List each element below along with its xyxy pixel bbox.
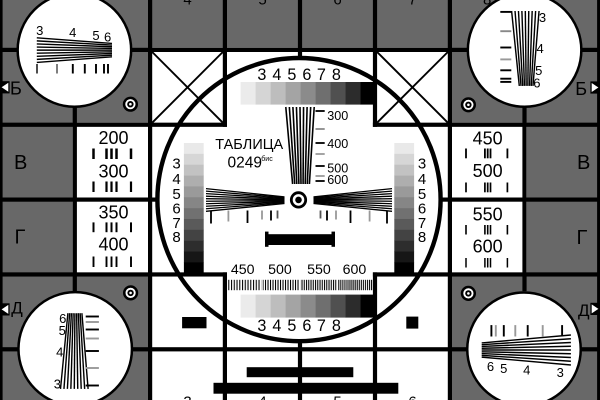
svg-text:8: 8 <box>332 317 341 335</box>
svg-text:5: 5 <box>59 323 66 338</box>
svg-text:400: 400 <box>327 137 348 151</box>
svg-text:4: 4 <box>56 344 63 359</box>
svg-text:6: 6 <box>487 359 494 374</box>
svg-text:500: 500 <box>473 161 503 181</box>
svg-text:3: 3 <box>54 377 61 392</box>
svg-text:3: 3 <box>36 23 43 38</box>
svg-text:6: 6 <box>302 66 311 84</box>
svg-text:3: 3 <box>172 156 180 173</box>
svg-text:5: 5 <box>92 28 99 43</box>
svg-text:3: 3 <box>557 365 564 380</box>
svg-text:300: 300 <box>98 161 128 181</box>
svg-text:450: 450 <box>473 129 503 149</box>
svg-text:Г: Г <box>15 227 26 249</box>
svg-text:В: В <box>14 152 27 174</box>
svg-text:5: 5 <box>500 361 507 376</box>
svg-text:3: 3 <box>418 156 426 173</box>
svg-text:350: 350 <box>98 203 128 223</box>
svg-text:400: 400 <box>98 235 128 255</box>
svg-text:Г: Г <box>577 227 588 249</box>
svg-text:3: 3 <box>257 66 266 84</box>
svg-text:4: 4 <box>536 41 543 56</box>
svg-text:4: 4 <box>523 363 530 378</box>
svg-text:Б: Б <box>10 78 22 98</box>
svg-text:600: 600 <box>473 237 503 257</box>
svg-text:4: 4 <box>69 25 76 40</box>
svg-text:7: 7 <box>317 317 326 335</box>
svg-text:бис: бис <box>261 155 273 163</box>
svg-text:500: 500 <box>268 262 292 278</box>
svg-text:6: 6 <box>333 0 341 9</box>
svg-text:4: 4 <box>258 394 266 400</box>
svg-text:Б: Б <box>575 79 587 99</box>
svg-text:5: 5 <box>333 394 341 400</box>
svg-text:550: 550 <box>473 205 503 225</box>
svg-text:4: 4 <box>183 0 191 9</box>
svg-text:300: 300 <box>327 109 348 123</box>
svg-text:8: 8 <box>418 229 426 246</box>
svg-text:5: 5 <box>258 0 266 9</box>
svg-text:В: В <box>577 152 590 174</box>
svg-text:6: 6 <box>302 317 311 335</box>
svg-text:ТАБЛИЦА: ТАБЛИЦА <box>215 137 283 153</box>
svg-text:7: 7 <box>408 0 416 9</box>
svg-text:8: 8 <box>332 66 341 84</box>
svg-text:0249: 0249 <box>228 155 262 172</box>
svg-text:3: 3 <box>183 394 191 400</box>
svg-text:450: 450 <box>231 262 255 278</box>
svg-text:3: 3 <box>257 317 266 335</box>
svg-text:550: 550 <box>307 262 331 278</box>
svg-text:6: 6 <box>104 30 111 45</box>
svg-text:4: 4 <box>272 66 281 84</box>
svg-text:8: 8 <box>483 0 491 9</box>
svg-text:7: 7 <box>317 66 326 84</box>
svg-text:6: 6 <box>533 76 540 91</box>
svg-text:4: 4 <box>272 317 281 335</box>
svg-text:600: 600 <box>327 173 348 187</box>
svg-text:3: 3 <box>539 10 546 25</box>
svg-text:5: 5 <box>287 317 296 335</box>
svg-text:5: 5 <box>287 66 296 84</box>
svg-text:Д: Д <box>11 299 23 318</box>
svg-text:6: 6 <box>408 394 416 400</box>
svg-text:600: 600 <box>343 262 367 278</box>
svg-text:8: 8 <box>172 229 180 246</box>
svg-text:200: 200 <box>98 128 128 148</box>
svg-text:Д: Д <box>578 301 590 320</box>
